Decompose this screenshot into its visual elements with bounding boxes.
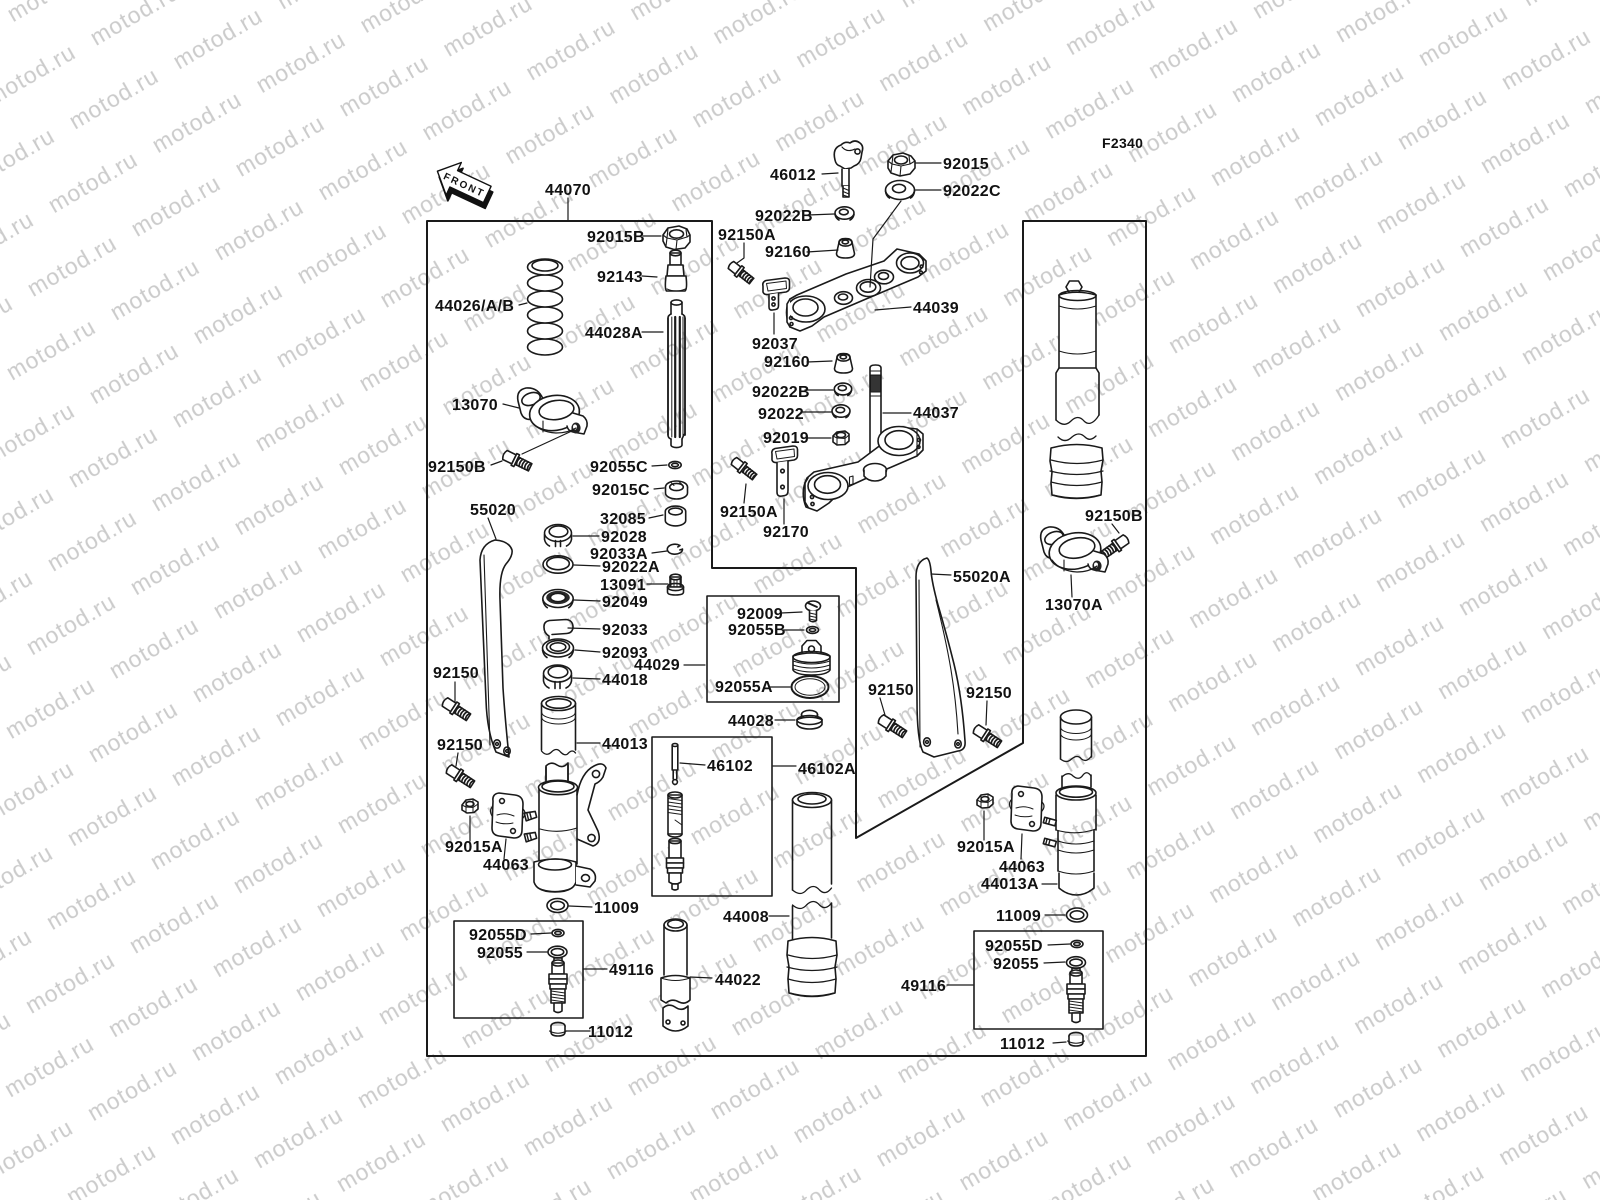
svg-text:44028A: 44028A [585,325,643,342]
svg-text:92055D: 92055D [469,927,527,944]
svg-text:92033: 92033 [602,622,648,639]
svg-text:13070A: 13070A [1045,597,1103,614]
svg-text:92150: 92150 [433,665,479,682]
svg-text:92160: 92160 [764,354,810,371]
svg-text:46102: 46102 [707,758,753,775]
svg-text:92055B: 92055B [728,622,786,639]
svg-text:92019: 92019 [763,430,809,447]
svg-text:92160: 92160 [765,244,811,261]
svg-text:92022C: 92022C [943,183,1001,200]
svg-text:92022B: 92022B [752,384,810,401]
svg-text:44037: 44037 [913,405,959,422]
svg-text:44070: 44070 [545,182,591,199]
svg-text:92055: 92055 [993,956,1039,973]
svg-text:49116: 49116 [901,978,946,995]
svg-text:92055A: 92055A [715,679,773,696]
svg-text:92015C: 92015C [592,482,650,499]
svg-text:92170: 92170 [763,524,809,541]
svg-text:44063: 44063 [483,857,529,874]
svg-text:92022A: 92022A [602,559,660,576]
svg-text:44063: 44063 [999,859,1045,876]
svg-text:92015A: 92015A [957,839,1015,856]
svg-text:92028: 92028 [601,529,647,546]
svg-text:92150B: 92150B [1085,508,1143,525]
svg-text:92009: 92009 [737,606,783,623]
svg-text:44039: 44039 [913,300,959,317]
svg-text:92049: 92049 [602,594,648,611]
svg-text:44008: 44008 [723,909,769,926]
svg-text:44013A: 44013A [981,876,1039,893]
svg-text:11009: 11009 [996,908,1041,925]
svg-text:92150: 92150 [966,685,1012,702]
svg-text:11012: 11012 [1000,1036,1045,1053]
svg-text:92055C: 92055C [590,459,648,476]
svg-text:92015B: 92015B [587,229,645,246]
svg-text:92150: 92150 [437,737,483,754]
svg-text:13070: 13070 [452,397,498,414]
svg-text:55020: 55020 [470,502,516,519]
svg-text:92150A: 92150A [720,504,778,521]
svg-text:13091: 13091 [600,577,646,594]
svg-text:92150: 92150 [868,682,914,699]
svg-text:92022: 92022 [758,406,804,423]
svg-text:92150A: 92150A [718,227,776,244]
svg-text:44018: 44018 [602,672,648,689]
svg-text:46102A: 46102A [798,761,856,778]
svg-text:92143: 92143 [597,269,643,286]
svg-text:46012: 46012 [770,167,816,184]
svg-text:55020A: 55020A [953,569,1011,586]
svg-text:92015A: 92015A [445,839,503,856]
svg-text:44028: 44028 [728,713,774,730]
svg-text:11012: 11012 [588,1024,633,1041]
svg-text:92037: 92037 [752,336,798,353]
svg-text:32085: 32085 [600,511,646,528]
svg-text:92055D: 92055D [985,938,1043,955]
svg-text:44013: 44013 [602,736,648,753]
svg-text:44026/A/B: 44026/A/B [435,298,514,315]
svg-text:F2340: F2340 [1102,135,1143,151]
svg-text:44022: 44022 [715,972,761,989]
svg-text:92015: 92015 [943,156,989,173]
svg-text:49116: 49116 [609,962,654,979]
svg-text:92055: 92055 [477,945,523,962]
svg-text:92150B: 92150B [428,459,486,476]
svg-text:11009: 11009 [594,900,639,917]
svg-text:92022B: 92022B [755,208,813,225]
